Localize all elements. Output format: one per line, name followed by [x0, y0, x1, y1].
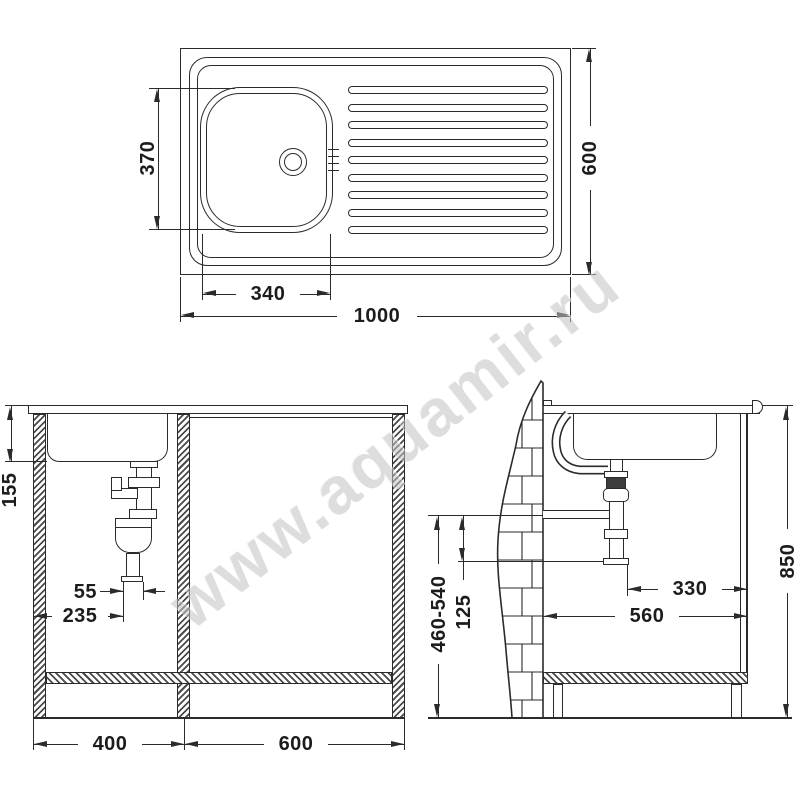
cabinet-base-line: [33, 717, 405, 719]
ext-line: [572, 48, 596, 49]
waste-vertical-pipe: [609, 501, 624, 530]
dim-1000-label: 1000: [337, 306, 417, 326]
overflow-slot: [328, 163, 339, 164]
arrow-left: [185, 741, 198, 747]
drainboard-rib: [348, 209, 548, 217]
bottle-trap-nut-line: [116, 527, 151, 528]
arrow-down: [586, 262, 592, 275]
cabinet-bottom-shelf-side: [543, 672, 748, 684]
arrow-right: [557, 312, 570, 318]
countertop-front-roll: [752, 400, 763, 414]
ext-line: [149, 229, 235, 230]
cabinet-bottom-shelf: [46, 672, 392, 684]
drainboard-rib: [348, 174, 548, 182]
drain-nut-round: [603, 488, 629, 502]
arrow-up: [459, 517, 465, 530]
arrow-right: [317, 290, 330, 296]
waste-pipe-lower: [609, 538, 624, 559]
overflow-elbow-vertical: [111, 477, 122, 491]
arrow-up: [434, 517, 440, 530]
ext-line: [123, 582, 124, 622]
dim-850-label: 850: [778, 529, 798, 593]
dim-155-label: 155: [0, 459, 20, 521]
arrow-up: [586, 49, 592, 62]
drainboard-rib: [348, 104, 548, 112]
arrow-right: [110, 588, 123, 594]
drainboard-rib: [348, 156, 548, 164]
dim-600-label: 600: [580, 126, 600, 190]
basin-inner-outline: [206, 93, 327, 227]
arrow-right: [391, 741, 404, 747]
dim-125-label: 125: [454, 580, 474, 644]
dim-370-label: 370: [138, 128, 158, 188]
drainboard-rib: [348, 86, 548, 94]
arrow-up: [154, 89, 160, 102]
cabinet-left-wall: [33, 414, 46, 718]
arrow-left: [628, 586, 641, 592]
arrow-right: [734, 613, 747, 619]
ext-line: [330, 234, 331, 300]
dim-55-label: 55: [63, 582, 97, 602]
arrow-left: [544, 613, 557, 619]
dim-560-label: 560: [615, 606, 679, 626]
ext-line: [428, 515, 543, 516]
ext-line: [149, 88, 235, 89]
sink-technical-drawing: 370 340 1000 600: [0, 0, 800, 800]
dim-235-label: 235: [52, 606, 108, 626]
dim-400-label: 400: [78, 734, 142, 754]
drainboard-rib: [348, 139, 548, 147]
bottle-trap: [115, 518, 152, 553]
dim-460-540-label: 460-540: [429, 564, 449, 664]
arrow-left: [34, 613, 47, 619]
floor-line: [428, 717, 792, 719]
cabinet-back-leg: [553, 684, 563, 718]
arrow-down: [154, 216, 160, 229]
overflow-slot: [328, 170, 339, 171]
arrow-up: [7, 407, 13, 420]
arrow-right: [171, 741, 184, 747]
waste-bottom-flange: [603, 558, 629, 565]
overflow-slot: [328, 149, 339, 150]
waste-horizontal-pipe: [543, 510, 611, 519]
overflow-pipe: [548, 406, 618, 478]
under-top-line: [190, 417, 392, 418]
arrow-down: [434, 704, 440, 717]
arrow-down: [459, 548, 465, 561]
arrow-right: [734, 586, 747, 592]
cabinet-front-leg: [731, 684, 742, 718]
cabinet-right-wall: [392, 414, 405, 718]
cabinet-front-panel: [746, 414, 748, 684]
dim-330-label: 330: [658, 579, 722, 599]
arrow-up: [783, 407, 789, 420]
drainboard-rib: [348, 121, 548, 129]
arrow-down: [783, 704, 789, 717]
arrow-left: [181, 312, 194, 318]
cabinet-front-panel-inner: [740, 414, 741, 672]
arrow-left: [143, 588, 156, 594]
dim-340-label: 340: [236, 284, 300, 304]
trap-outlet-pipe: [126, 553, 140, 577]
drainboard-rib: [348, 191, 548, 199]
drainboard-rib: [348, 226, 548, 234]
drain-hole-inner: [284, 153, 302, 171]
basin-section: [47, 413, 168, 462]
arrow-left: [34, 741, 47, 747]
arrow-right: [110, 613, 123, 619]
overflow-slot: [328, 156, 339, 157]
ext-line: [572, 274, 596, 275]
dim-600b-label: 600: [264, 734, 328, 754]
arrow-left: [203, 290, 216, 296]
